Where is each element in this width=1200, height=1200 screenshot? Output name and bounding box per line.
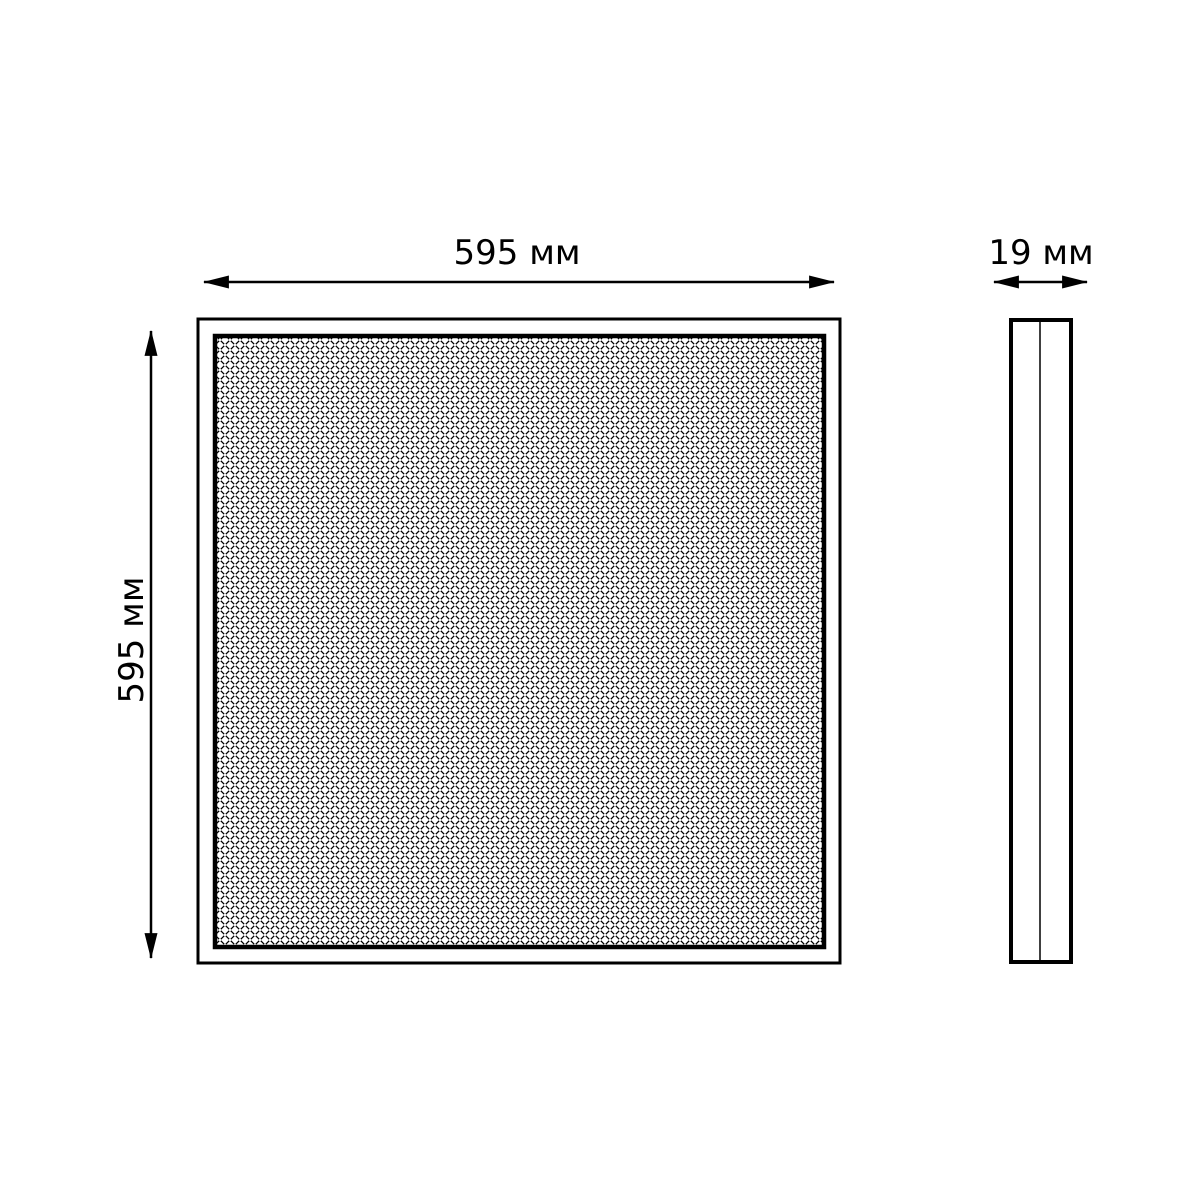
technical-drawing-canvas: 595 мм 595 мм 19 мм	[0, 0, 1200, 1200]
front-panel-diffuser	[215, 336, 824, 947]
side-panel-profile	[1011, 320, 1071, 962]
front-height-dimension-label: 595 мм	[112, 576, 152, 703]
side-depth-dimension: 19 мм	[988, 233, 1093, 282]
side-view: 19 мм	[988, 233, 1093, 962]
side-depth-dimension-label: 19 мм	[988, 233, 1093, 273]
panel-dimension-diagram: 595 мм 595 мм 19 мм	[0, 0, 1200, 1200]
front-view: 595 мм 595 мм	[112, 233, 840, 963]
front-width-dimension: 595 мм	[204, 233, 834, 282]
front-height-dimension: 595 мм	[112, 331, 152, 958]
front-width-dimension-label: 595 мм	[453, 233, 580, 273]
